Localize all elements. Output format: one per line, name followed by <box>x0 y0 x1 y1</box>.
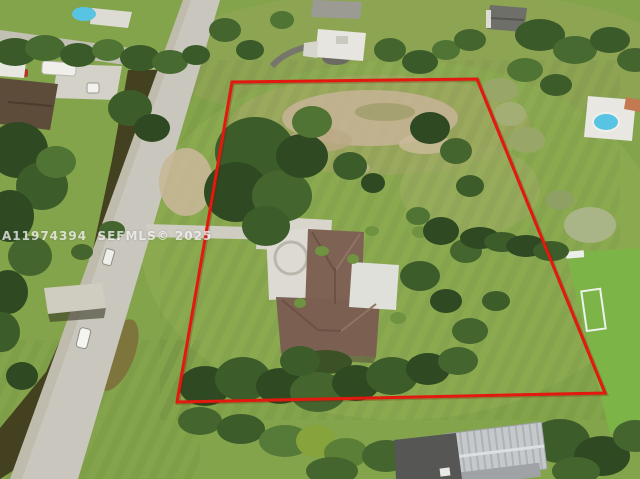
aerial-photo-canvas <box>0 0 640 479</box>
top-house-gray-roof <box>311 0 362 19</box>
neighbor-pool <box>593 113 619 131</box>
white-car-parking <box>87 83 99 93</box>
aerial-photo: A11974394 SEFMLS© 2025 <box>0 0 640 479</box>
white-house-annex <box>303 41 318 58</box>
top-left-pool <box>72 7 96 21</box>
roof-ridge-2 <box>318 330 341 331</box>
dirt-patch-left <box>159 148 213 216</box>
house-white-wing-roof <box>349 262 399 310</box>
gable-house-trim <box>486 10 491 28</box>
dirt-green-mottle <box>355 103 415 121</box>
white-two-story-house <box>315 29 366 61</box>
warehouse-asphalt <box>394 433 462 479</box>
warehouse-white-detail <box>440 467 451 476</box>
white-house-detail <box>336 36 348 44</box>
